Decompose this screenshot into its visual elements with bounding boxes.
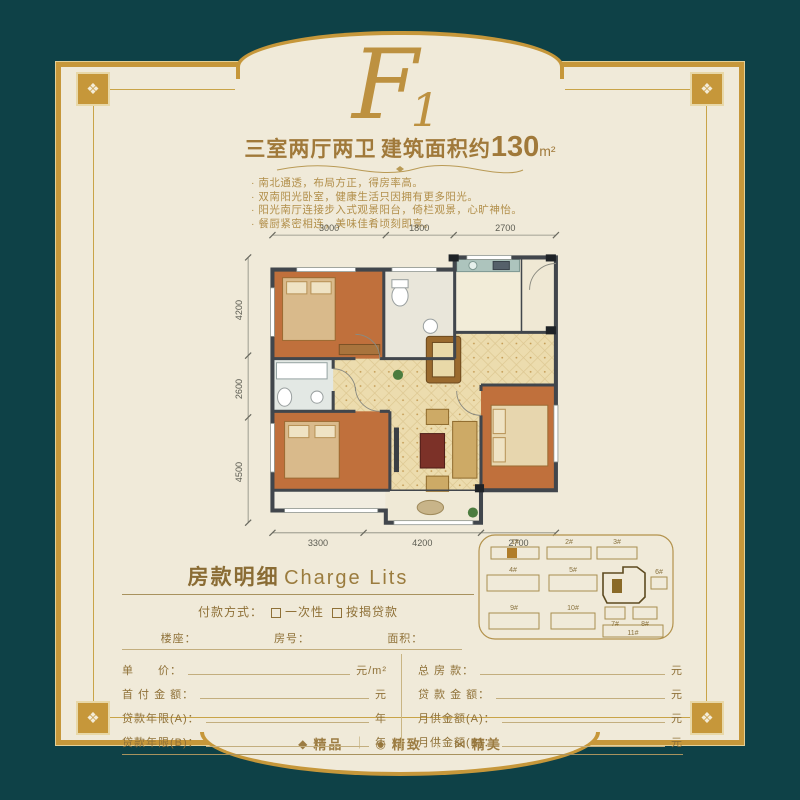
charge-form: 单 价：元/m² 首 付 金 额：元 贷款年限(A)：年 贷款年限(B)：年 总… (122, 654, 683, 755)
blank-line (206, 746, 369, 747)
svg-text:11#: 11# (627, 630, 638, 637)
form-row: 贷 款 金 额：元 (418, 678, 683, 702)
charge-title-en: Charge Lits (284, 567, 408, 589)
corner-ornament-icon: ❖ (690, 701, 724, 735)
logo-number: 1 (411, 83, 440, 137)
title-rooms: 三室两厅两卫 (244, 138, 376, 161)
payment-label: 付款方式： (198, 603, 263, 620)
dim-bottom-1: 3300 (308, 538, 328, 548)
blank-line (496, 698, 665, 699)
svg-text:8#: 8# (641, 621, 649, 628)
feature-item: · 双南阳光卧室，健康生活只因拥有更多阳光。 (251, 191, 522, 205)
svg-text:7#: 7# (611, 621, 619, 628)
feature-item: · 阳光南厅连接步入式观景阳台，倚栏观景，心旷神怡。 (251, 204, 522, 218)
form-row: 单 价：元/m² (122, 654, 387, 678)
charge-form-left: 单 价：元/m² 首 付 金 额：元 贷款年限(A)：年 贷款年限(B)：年 (122, 654, 402, 750)
charge-title-zh: 房款明细 (188, 566, 280, 589)
dim-bottom-2: 4200 (412, 538, 432, 548)
form-row: 总 房 款：元 (418, 654, 683, 678)
corner-ornament-icon: ❖ (690, 72, 724, 106)
blank-line (206, 722, 369, 723)
blank-line (502, 746, 665, 747)
charge-section: 房款明细 Charge Lits 付款方式： 一次性 按揭贷款 楼座： 房号： … (122, 561, 683, 755)
checkbox-once-icon (271, 608, 281, 618)
page-title: 三室两厅两卫 建筑面积约130m² (61, 131, 739, 164)
keymap-labels: 1# 2# 3# 4# 5# 6# 7# 8# 9# 10# 11# (509, 539, 663, 637)
title-area-prefix: 建筑面积约 (381, 138, 491, 161)
payment-method-row: 付款方式： 一次性 按揭贷款 (122, 603, 474, 620)
floor-plan: 3000 1800 2700 4200 2600 4500 3300 4200 … (224, 223, 576, 549)
logo-letter: F (352, 29, 419, 141)
dim-left-3: 4500 (234, 462, 244, 482)
corner-ornament-icon: ❖ (76, 72, 110, 106)
dim-top-3: 2700 (495, 223, 515, 233)
corner-ornament-icon: ❖ (76, 701, 110, 735)
field-room: 房号： (235, 630, 348, 646)
dim-left-1: 4200 (234, 300, 244, 320)
svg-text:2#: 2# (565, 539, 573, 546)
svg-text:10#: 10# (567, 605, 579, 612)
title-area-value: 130 (491, 131, 539, 163)
feature-item: · 南北通透，布局方正，得房率高。 (251, 177, 522, 191)
svg-text:3#: 3# (613, 539, 621, 546)
payment-option-mortgage: 按揭贷款 (332, 603, 398, 620)
dim-top-1: 3000 (319, 223, 339, 233)
blank-line (200, 698, 369, 699)
blank-line (502, 722, 665, 723)
charge-form-right: 总 房 款：元 贷 款 金 额：元 月供金额(A)：元 月供金额(B)：元 (402, 654, 683, 750)
field-building: 楼座： (122, 630, 235, 646)
form-row: 贷款年限(B)：年 (122, 726, 387, 750)
title-area-unit: m² (539, 143, 555, 159)
dim-left-2: 2600 (234, 379, 244, 399)
checkbox-mortgage-icon (332, 608, 342, 618)
site-key-map: 1# 2# 3# 4# 5# 6# 7# 8# 9# 10# 11# (477, 533, 675, 645)
svg-text:6#: 6# (655, 569, 663, 576)
form-row: 首 付 金 额：元 (122, 678, 387, 702)
form-row: 贷款年限(A)：年 (122, 702, 387, 726)
svg-text:4#: 4# (509, 567, 517, 574)
form-row: 月供金额(A)：元 (418, 702, 683, 726)
floorplan-type-logo: F1 (352, 37, 448, 133)
blank-line (480, 674, 665, 675)
svg-text:5#: 5# (569, 567, 577, 574)
flyer-card: ❖ ❖ ❖ ❖ F1 三室两厅两卫 建筑面积约130m² · 南北通透，布局方正… (56, 62, 744, 745)
svg-text:9#: 9# (510, 605, 518, 612)
payment-option-once: 一次性 (271, 603, 324, 620)
title-flourish (275, 164, 525, 174)
charge-title: 房款明细 Charge Lits (122, 561, 474, 595)
unit-info-row: 楼座： 房号： 面积： (122, 630, 462, 650)
field-area: 面积： (349, 630, 462, 646)
blank-line (188, 674, 350, 675)
form-row: 月供金额(B)：元 (418, 726, 683, 750)
poster-background: ❖ ❖ ❖ ❖ F1 三室两厅两卫 建筑面积约130m² · 南北通透，布局方正… (0, 0, 800, 800)
svg-text:1#: 1# (511, 539, 519, 546)
dim-top-2: 1800 (409, 223, 429, 233)
